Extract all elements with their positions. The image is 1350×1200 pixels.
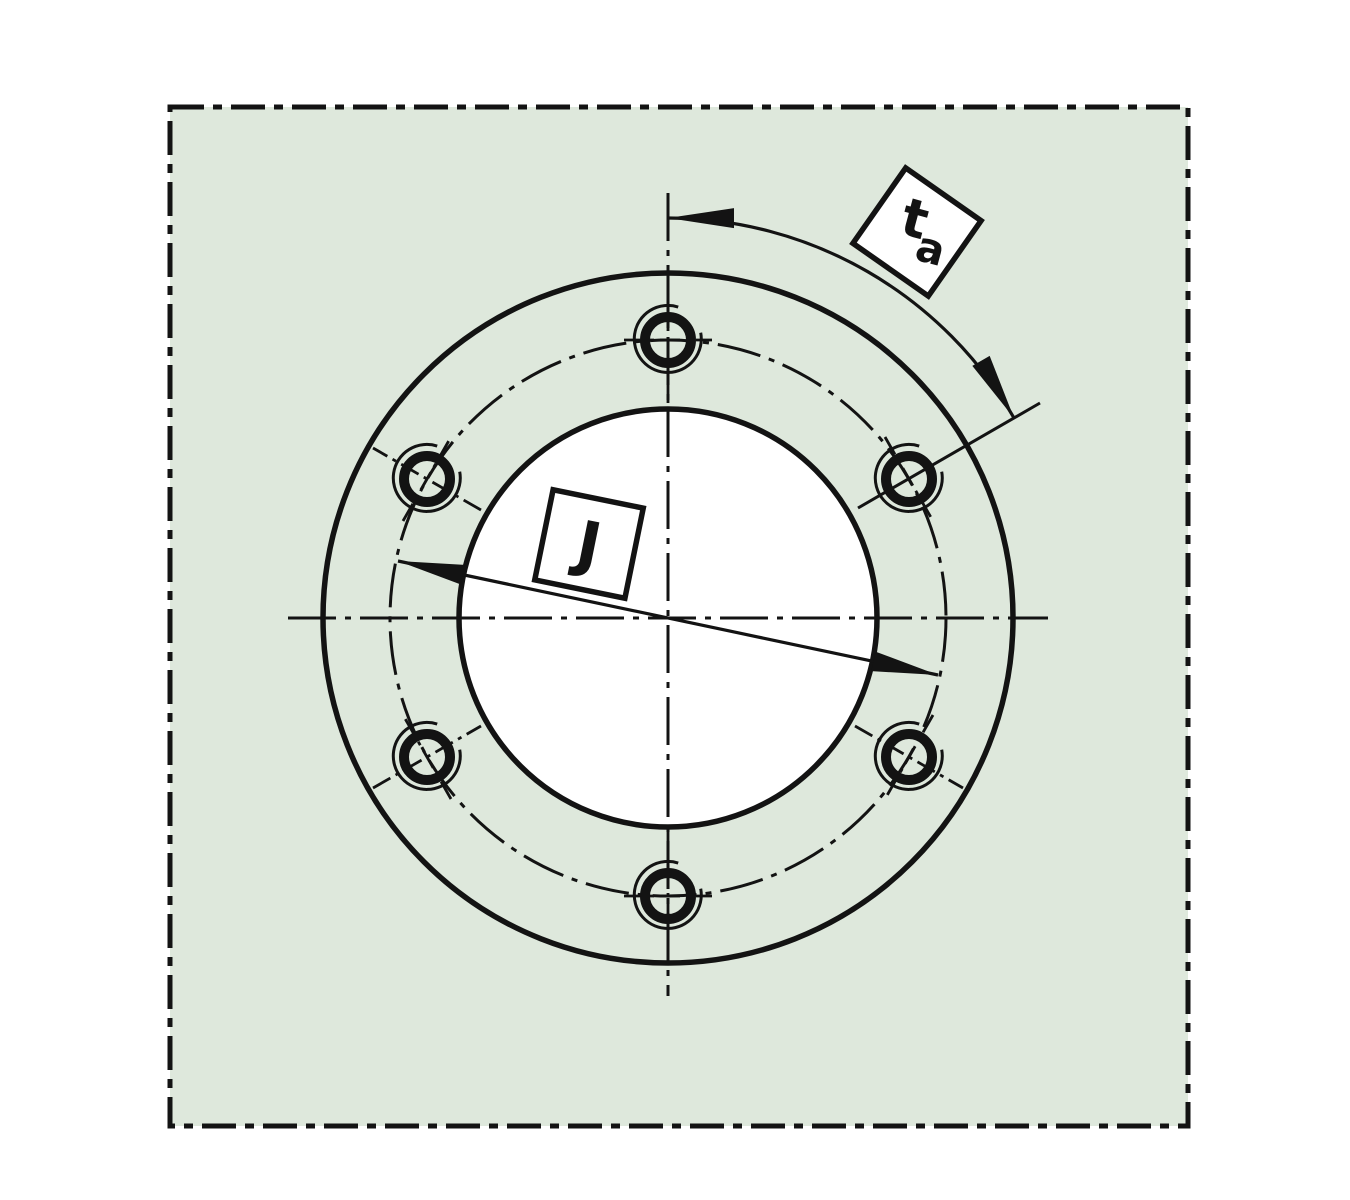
diameter-label: J xyxy=(535,490,643,598)
flange-drawing: J ta xyxy=(0,0,1350,1200)
drawing-canvas: J ta xyxy=(0,0,1350,1200)
